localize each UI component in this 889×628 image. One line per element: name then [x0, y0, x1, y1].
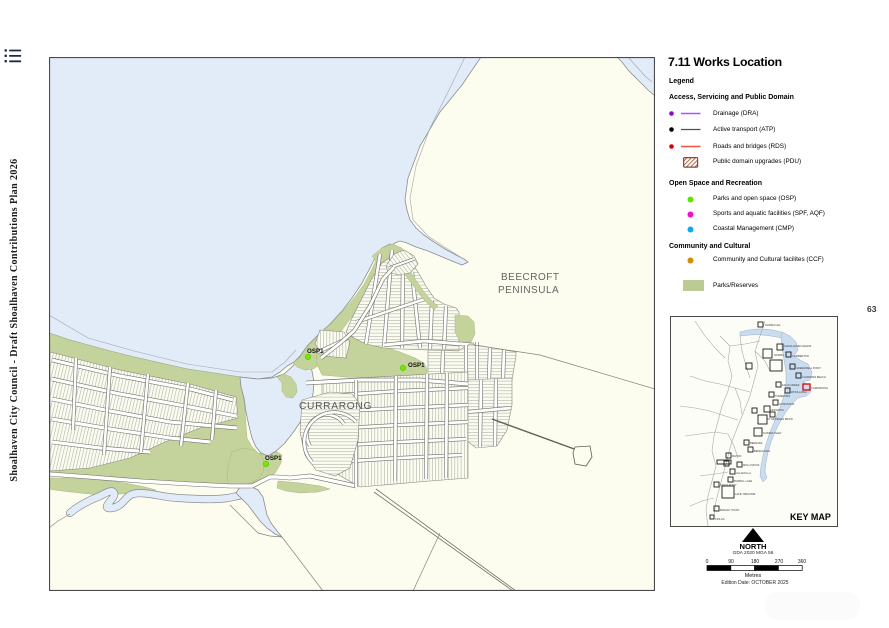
svg-text:CURRARONG: CURRARONG — [299, 401, 372, 412]
svg-text:SHOALHAVEN HEADS: SHOALHAVEN HEADS — [784, 344, 811, 348]
svg-text:GREENWELL POINT: GREENWELL POINT — [796, 366, 821, 370]
svg-text:BERRARA: BERRARA — [750, 441, 763, 445]
svg-text:NOWRA HILL: NOWRA HILL — [765, 323, 782, 327]
svg-text:OSP1: OSP1 — [408, 362, 425, 369]
svg-text:LAKE TABOURIE: LAKE TABOURIE — [735, 492, 756, 496]
svg-text:BURRILL LAKE: BURRILL LAKE — [734, 479, 752, 483]
svg-text:ULLADULLA: ULLADULLA — [736, 471, 751, 475]
svg-text:KINGS POINT: KINGS POINT — [720, 483, 737, 487]
svg-text:KEY MAP: KEY MAP — [790, 512, 831, 522]
svg-text:OSP1: OSP1 — [307, 348, 324, 355]
svg-text:CULBURRA BEACH: CULBURRA BEACH — [802, 375, 826, 379]
svg-text:270: 270 — [775, 559, 784, 565]
svg-text:WOOLLAMIA: WOOLLAMIA — [791, 390, 807, 394]
svg-text:360: 360 — [798, 559, 807, 565]
svg-text:MOLLYMOOK: MOLLYMOOK — [743, 463, 760, 467]
svg-text:BENDALONG: BENDALONG — [754, 449, 770, 453]
svg-text:KIOLOA: KIOLOA — [715, 517, 725, 521]
svg-text:VINCENTIA: VINCENTIA — [770, 408, 784, 412]
svg-text:TOMERONG: TOMERONG — [775, 394, 790, 398]
svg-text:180: 180 — [751, 559, 760, 565]
svg-text:BAWLEY POINT: BAWLEY POINT — [720, 508, 740, 512]
svg-text:ST GEORGES BASIN: ST GEORGES BASIN — [767, 417, 793, 421]
svg-text:0: 0 — [706, 559, 709, 565]
svg-text:MILTON: MILTON — [732, 454, 742, 458]
svg-text:90: 90 — [728, 559, 734, 565]
svg-text:NOWRA: NOWRA — [774, 353, 784, 357]
svg-text:COMBERTON: COMBERTON — [792, 354, 809, 358]
svg-text:FALLS CREEK: FALLS CREEK — [782, 383, 800, 387]
svg-text:BEECROFT: BEECROFT — [501, 272, 559, 283]
svg-text:OSP1: OSP1 — [265, 455, 282, 462]
svg-text:SUSSEX INLET: SUSSEX INLET — [763, 431, 782, 435]
svg-text:HUSKISSON: HUSKISSON — [779, 402, 794, 406]
svg-text:PENINSULA: PENINSULA — [498, 285, 559, 296]
svg-text:CURRARONG: CURRARONG — [811, 386, 828, 390]
